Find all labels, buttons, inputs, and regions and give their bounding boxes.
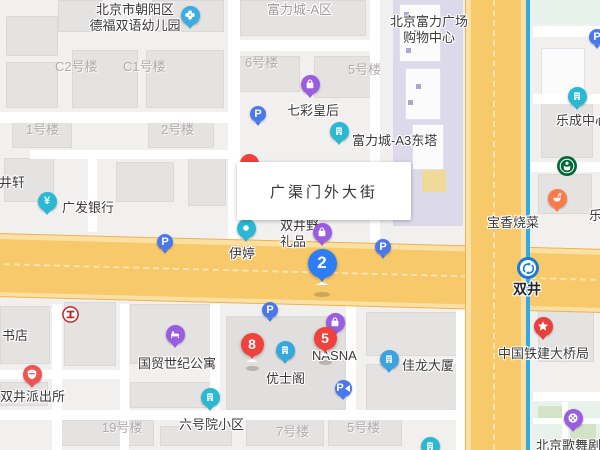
mall-window [406, 48, 411, 53]
mall-section [422, 170, 446, 192]
guomao-century-apartment-label: 国贸世纪公寓 [138, 356, 216, 372]
building-number-label: 19号楼 [102, 420, 142, 436]
le-partial-label-label: 乐 [589, 208, 600, 224]
minor-road [30, 150, 228, 159]
building-number-label: C2号楼 [55, 59, 98, 75]
guangfa-bank-label: 广发银行 [62, 200, 114, 216]
liuhaoyuan-community-label: 六号院小区 [179, 417, 244, 433]
fulicheng-a3-east-tower-label: 富力城-A3东塔 [352, 133, 437, 149]
mall-window [416, 84, 421, 89]
selected-result-2-marker[interactable]: 2 [308, 249, 337, 278]
bowl-icon[interactable] [548, 189, 567, 208]
baoxiang-restaurant-label: 宝香烧菜 [487, 215, 539, 231]
building-footprint [6, 62, 58, 108]
minor-road [0, 370, 122, 379]
icbc-icon[interactable] [62, 306, 79, 323]
minor-road [533, 392, 600, 401]
building-footprint [541, 102, 593, 158]
jialong-tower-label: 佳龙大厦 [402, 358, 454, 374]
building-footprint [116, 162, 174, 202]
yiting-label: 伊婷 [229, 246, 255, 262]
minor-road [230, 40, 370, 51]
building-number-label: 5号楼 [347, 420, 380, 436]
shuangjing-metro-station-label: 双井 [513, 281, 541, 297]
building-icon[interactable] [201, 388, 220, 407]
building-icon[interactable] [276, 341, 295, 360]
marker-shadow [314, 292, 330, 297]
building-icon[interactable] [380, 350, 399, 369]
china-railway-bridge-bureau-label: 中国铁建大桥局 [498, 346, 589, 362]
star-icon[interactable] [534, 317, 553, 336]
building-icon[interactable] [568, 87, 587, 106]
beijing-song-dance-theater-label: 北京歌舞剧 [536, 438, 600, 450]
shuangjing-police-station-label: 双井派出所 [0, 389, 65, 405]
building-number-label: C1号楼 [123, 59, 166, 75]
building-footprint [6, 16, 58, 56]
badge-icon[interactable] [23, 365, 42, 384]
building-number-label: 6号楼 [245, 55, 278, 71]
parking-entrance-icon[interactable]: P [335, 380, 352, 397]
youshige-label: 优士阁 [266, 371, 305, 387]
minor-road [88, 159, 97, 232]
bag-icon[interactable] [313, 223, 332, 242]
parking-icon[interactable]: P [375, 239, 391, 255]
flower-icon[interactable] [181, 6, 200, 25]
shuangjingxuan-label: 双井轩 [0, 175, 25, 191]
green-area [530, 0, 600, 24]
parking-icon[interactable]: P [589, 29, 600, 45]
film-icon[interactable] [564, 409, 583, 428]
map-canvas[interactable]: C2号楼C1号楼6号楼5号楼1号楼2号楼19号楼7号楼5号楼北京市朝阳区 德福双… [0, 0, 600, 450]
metro-icon[interactable] [517, 257, 539, 279]
street-name-label: 广渠门外大街 [270, 181, 378, 202]
dot-icon[interactable] [237, 219, 256, 238]
parking-icon[interactable]: P [250, 106, 266, 122]
building-number-label: 5号楼 [348, 62, 381, 78]
building-footprint [188, 152, 226, 206]
bed-icon[interactable] [166, 325, 185, 344]
lecheng-center-label: 乐成中心 [556, 113, 600, 129]
street-name-overlay: 广渠门外大街 [237, 162, 411, 220]
building-number-label: 7号楼 [276, 424, 309, 440]
result-marker-5-marker[interactable]: 5 [314, 327, 337, 350]
building-number-label: 1号楼 [26, 122, 59, 138]
building-icon[interactable] [330, 122, 349, 141]
building-footprint [366, 312, 458, 356]
kindergarten-label: 北京市朝阳区 德福双语幼儿园 [85, 2, 185, 34]
bookstore-label: 书店 [2, 328, 28, 344]
yuan-icon[interactable]: ¥ [38, 192, 57, 211]
mall-window [408, 100, 413, 105]
parking-icon[interactable]: P [262, 302, 278, 318]
marker-shadow [246, 366, 259, 371]
building-footprint [405, 68, 441, 120]
fuli-plaza-mall-label: 北京富力广场 购物中心 [383, 14, 475, 46]
area-fulicheng-a-label: 富力城-A区 [267, 2, 332, 18]
bag-icon[interactable] [301, 75, 320, 94]
parking-icon[interactable]: P [157, 234, 173, 250]
building-icon[interactable] [421, 437, 440, 450]
minor-road [533, 94, 600, 104]
starbucks-icon[interactable] [557, 156, 577, 176]
result-marker-8-marker[interactable]: 8 [241, 333, 264, 356]
building-number-label: 2号楼 [161, 122, 194, 138]
qicai-huanghou-label: 七彩皇后 [287, 103, 339, 119]
